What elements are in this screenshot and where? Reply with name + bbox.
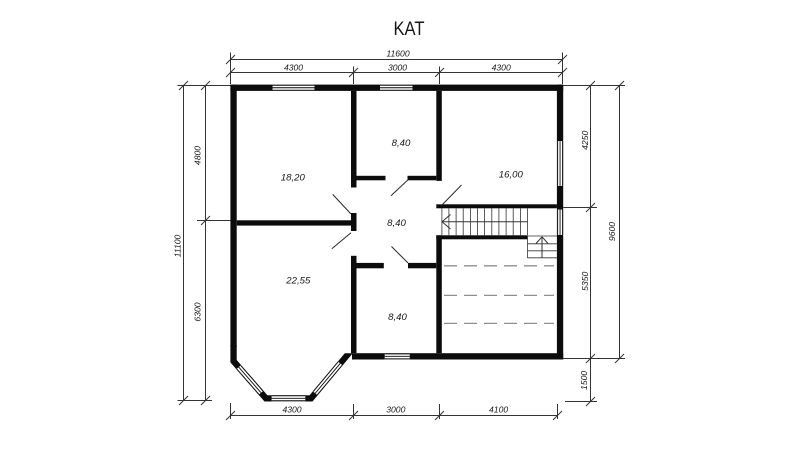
svg-text:22,55: 22,55: [285, 276, 311, 287]
svg-text:1500: 1500: [579, 371, 589, 390]
svg-text:5350: 5350: [580, 272, 590, 291]
svg-text:4300: 4300: [282, 405, 301, 415]
svg-text:KAT: KAT: [394, 18, 425, 40]
svg-text:6300: 6300: [193, 302, 203, 321]
svg-text:16,00: 16,00: [499, 170, 524, 181]
svg-text:18,20: 18,20: [281, 173, 306, 184]
svg-text:3000: 3000: [386, 405, 405, 415]
svg-text:4800: 4800: [193, 146, 203, 165]
svg-text:11600: 11600: [386, 49, 409, 59]
svg-text:11100: 11100: [173, 234, 183, 257]
svg-text:8,40: 8,40: [387, 218, 406, 229]
svg-text:4100: 4100: [489, 405, 508, 415]
svg-text:4300: 4300: [284, 63, 303, 73]
svg-text:8,40: 8,40: [388, 312, 407, 323]
svg-text:4250: 4250: [580, 131, 590, 150]
svg-text:4300: 4300: [492, 63, 511, 73]
svg-text:9600: 9600: [607, 222, 617, 241]
svg-text:3000: 3000: [388, 63, 407, 73]
svg-text:8,40: 8,40: [392, 138, 411, 149]
